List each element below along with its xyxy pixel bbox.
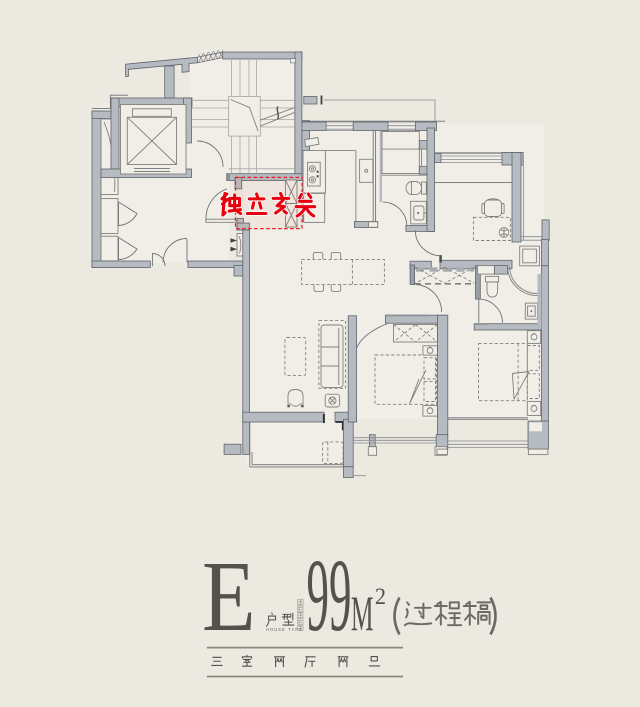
svg-text:E: E [202,541,256,652]
svg-text:99: 99 [307,538,352,653]
svg-text:M: M [351,586,374,641]
svg-text:HOUSE TYPE: HOUSE TYPE [266,627,303,632]
svg-text:2: 2 [375,584,386,609]
